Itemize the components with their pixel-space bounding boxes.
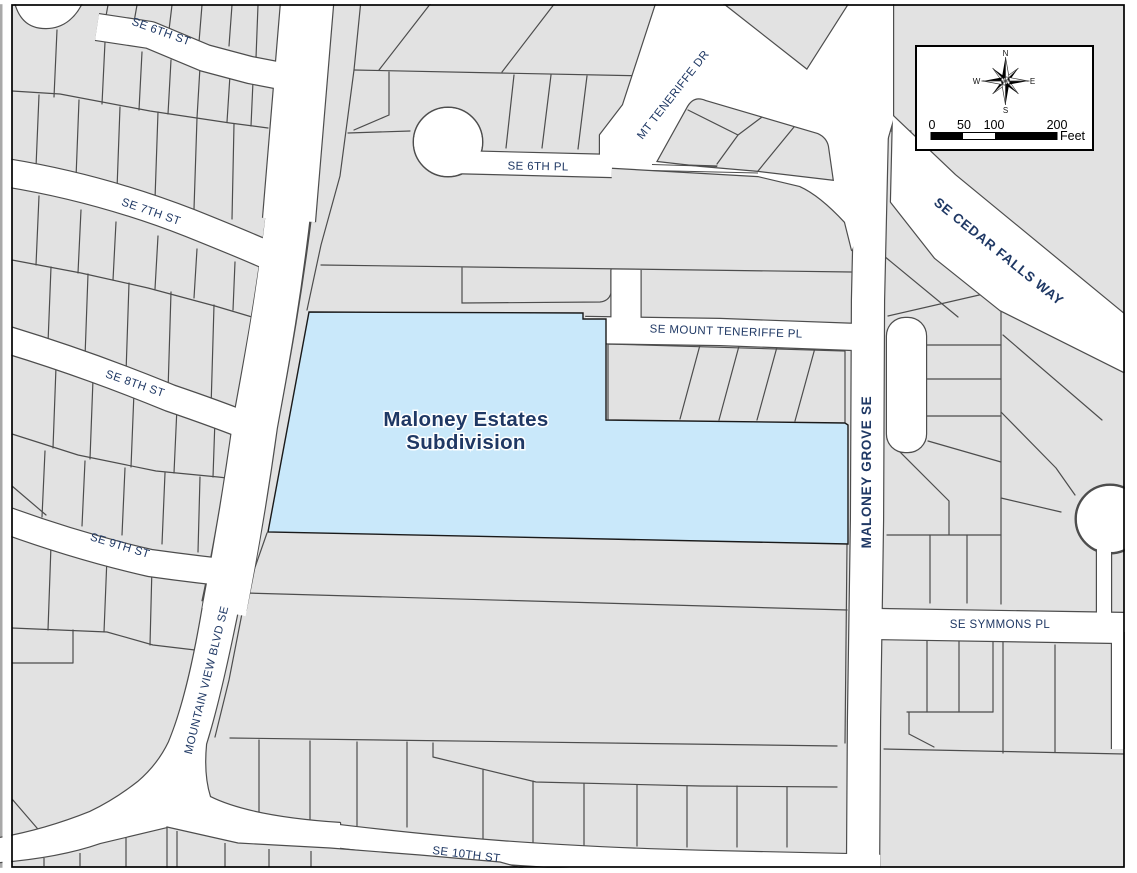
svg-text:N: N bbox=[1003, 49, 1009, 58]
svg-text:W: W bbox=[973, 77, 981, 86]
svg-text:Maloney Estates: Maloney Estates bbox=[383, 408, 548, 431]
svg-text:SE SYMMONS PL: SE SYMMONS PL bbox=[950, 619, 1051, 631]
svg-text:MALONEY GROVE SE: MALONEY GROVE SE bbox=[859, 396, 874, 549]
svg-text:100: 100 bbox=[984, 118, 1005, 132]
svg-text:SE 6TH PL: SE 6TH PL bbox=[507, 160, 569, 173]
svg-text:Subdivision: Subdivision bbox=[406, 431, 525, 454]
svg-text:E: E bbox=[1030, 77, 1035, 86]
svg-text:50: 50 bbox=[957, 118, 971, 132]
svg-text:0: 0 bbox=[929, 118, 936, 132]
svg-text:S: S bbox=[1003, 106, 1008, 115]
svg-text:Feet: Feet bbox=[1060, 129, 1086, 143]
